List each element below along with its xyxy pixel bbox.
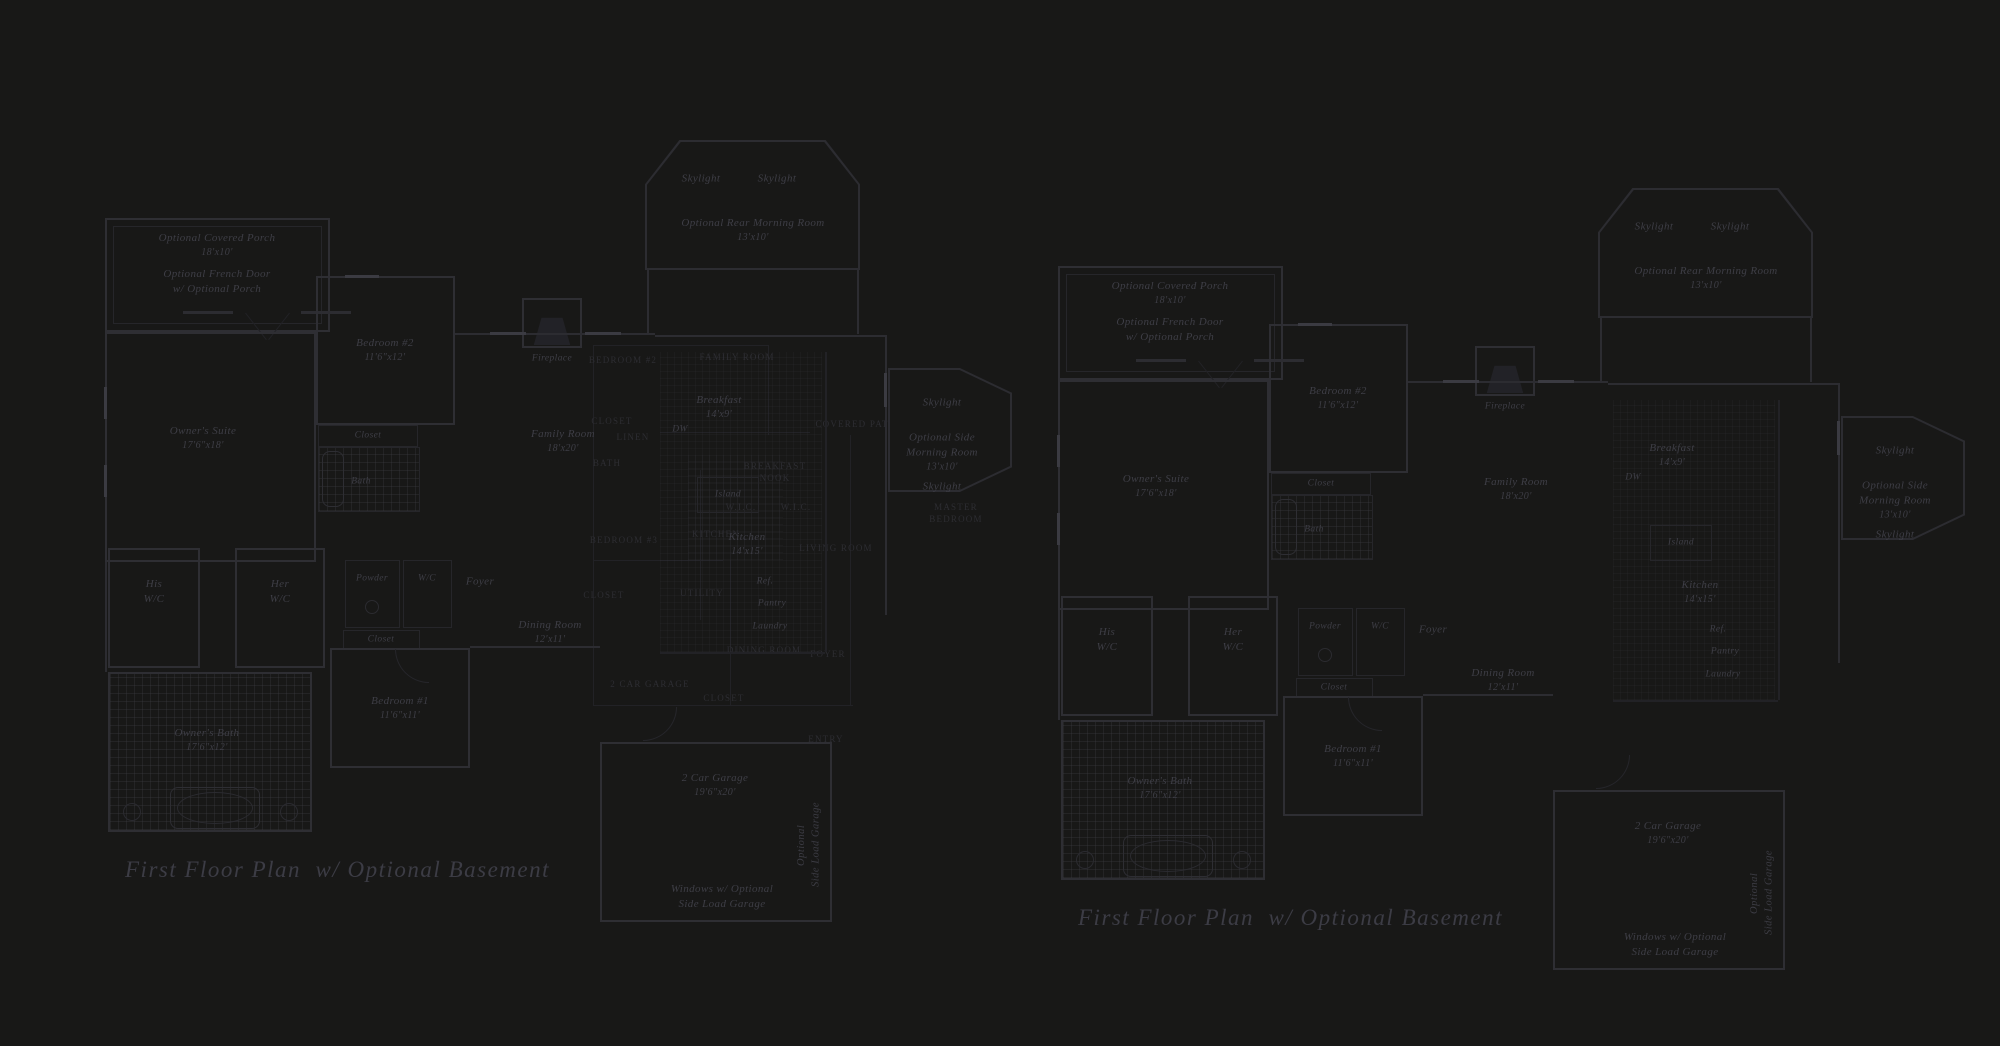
left-outer-wall — [1058, 610, 1060, 720]
window-mark — [104, 465, 107, 497]
plan-title: First Floor Plan w/ Optional Basement — [125, 857, 550, 883]
bath-sink — [1233, 851, 1251, 869]
closet-label: Closet — [355, 430, 382, 443]
fireplace-label: Fireplace — [532, 353, 572, 366]
garden-tub-basin — [177, 792, 253, 824]
covered-porch-label: Optional Covered Porch 18'x10' — [159, 231, 276, 259]
rear-morning-floor — [1600, 190, 1811, 316]
bedroom2-label: Bedroom #2 11'6"x12' — [1309, 384, 1367, 412]
bay-stub-wall — [1600, 318, 1602, 382]
rear-morning-room — [645, 140, 860, 270]
her-wc-room — [1188, 596, 1278, 716]
french-door-leaf — [183, 311, 233, 314]
bedroom2-label: Bedroom #2 11'6"x12' — [356, 336, 414, 364]
pantry-label: Pantry — [1711, 646, 1739, 659]
his-wc-room — [1061, 596, 1153, 716]
her-wc-label: Her W/C — [1223, 625, 1244, 655]
foyer-label: Foyer — [1419, 623, 1447, 638]
closet2-label: Closet — [368, 634, 395, 647]
door-swing-arc — [643, 707, 677, 741]
skylight-label: Skylight — [923, 396, 962, 411]
owners-bath-label: Owner's Bath 17'6"x12' — [175, 726, 240, 754]
bath-sink — [280, 803, 298, 821]
her-wc-room — [235, 548, 325, 668]
window-mark — [1057, 435, 1060, 467]
rear-morning-room — [1598, 188, 1813, 318]
rear-wall — [1608, 383, 1838, 385]
french-door-leaf — [1136, 359, 1186, 362]
window-mark — [585, 332, 621, 335]
bay-stub-wall — [647, 270, 649, 334]
his-wc-label: His W/C — [1097, 625, 1118, 655]
family-room-wall — [455, 333, 655, 335]
kitchen-wall — [825, 352, 827, 652]
bath-label: Bath — [1304, 524, 1324, 537]
family-room-label: Family Room 18'x20' — [1484, 475, 1548, 503]
ref-label: Ref. — [1710, 624, 1727, 637]
bath-sink — [1076, 851, 1094, 869]
window-mark — [1837, 421, 1840, 455]
his-wc-room — [108, 548, 200, 668]
powder-sink — [1318, 648, 1332, 662]
window-mark — [1298, 323, 1332, 326]
breakfast-label: Breakfast 14'x9' — [696, 393, 741, 421]
door-swing-arc — [1596, 755, 1630, 789]
ref-label: Ref. — [757, 576, 774, 589]
island-label: Island — [1668, 537, 1694, 550]
powder-room — [1298, 608, 1353, 676]
skylight-label: Skylight — [1711, 220, 1750, 235]
his-wc-label: His W/C — [144, 577, 165, 607]
wc-label: W/C — [1371, 621, 1389, 634]
powder-label: Powder — [1309, 621, 1341, 634]
french-door-note: Optional French Door w/ Optional Porch — [163, 267, 270, 297]
left-outer-wall — [105, 562, 107, 672]
kitchen-wall — [1613, 700, 1778, 702]
skylight-label: Skylight — [758, 172, 797, 187]
laundry-label: Laundry — [753, 621, 788, 634]
side-load-garage-label: Optional Side Load Garage — [795, 780, 824, 910]
dining-wall — [1423, 694, 1553, 696]
skylight-label: Skylight — [923, 480, 962, 495]
garage-windows-note: Windows w/ Optional Side Load Garage — [1624, 930, 1726, 960]
powder-room — [345, 560, 400, 628]
foyer-label: Foyer — [466, 575, 494, 590]
breakfast-label: Breakfast 14'x9' — [1649, 441, 1694, 469]
bedroom1-label: Bedroom #1 11'6"x11' — [371, 694, 429, 722]
kitchen-wall — [660, 652, 825, 654]
dining-room-label: Dining Room 12'x11' — [1471, 666, 1534, 694]
owners-suite-label: Owner's Suite 17'6"x18' — [170, 424, 237, 452]
fireplace-label: Fireplace — [1485, 401, 1525, 414]
bathtub — [322, 451, 344, 507]
wc-room — [403, 560, 452, 628]
garden-tub-basin — [1130, 840, 1206, 872]
bedroom1-label: Bedroom #1 11'6"x11' — [1324, 742, 1382, 770]
window-mark — [104, 387, 107, 419]
rear-morning-label: Optional Rear Morning Room 13'x10' — [1634, 264, 1777, 292]
owners-suite-label: Owner's Suite 17'6"x18' — [1123, 472, 1190, 500]
dw-label: DW — [672, 424, 688, 437]
pantry-label: Pantry — [758, 598, 786, 611]
garage-label: 2 Car Garage 19'6"x20' — [1635, 819, 1702, 847]
french-door-note: Optional French Door w/ Optional Porch — [1116, 315, 1223, 345]
dining-wall — [470, 646, 600, 648]
floor-plan-right: Optional Covered Porch 18'x10' Optional … — [1048, 183, 1968, 983]
garage-label: 2 Car Garage 19'6"x20' — [682, 771, 749, 799]
window-mark — [490, 332, 526, 335]
dining-room-label: Dining Room 12'x11' — [518, 618, 581, 646]
laundry-label: Laundry — [1706, 669, 1741, 682]
blueprint-canvas: BEDROOM #2 FAMILY ROOM CLOSET LINEN BATH… — [0, 0, 2000, 1046]
closet2-label: Closet — [1321, 682, 1348, 695]
rear-wall — [655, 335, 885, 337]
skylight-label: Skylight — [1876, 528, 1915, 543]
bay-stub-wall — [1810, 318, 1812, 382]
window-mark — [884, 373, 887, 407]
skylight-label: Skylight — [1876, 444, 1915, 459]
family-room-wall — [1408, 381, 1608, 383]
garage-windows-note: Windows w/ Optional Side Load Garage — [671, 882, 773, 912]
powder-sink — [365, 600, 379, 614]
window-mark — [1538, 380, 1574, 383]
plan-title: First Floor Plan w/ Optional Basement — [1078, 905, 1503, 931]
bathtub — [1275, 499, 1297, 555]
rear-morning-floor — [647, 142, 858, 268]
side-morning-label: Optional Side Morning Room 13'x10' — [1859, 478, 1931, 521]
bath-sink — [123, 803, 141, 821]
wc-label: W/C — [418, 573, 436, 586]
wc-room — [1356, 608, 1405, 676]
covered-porch-label: Optional Covered Porch 18'x10' — [1112, 279, 1229, 307]
kitchen-wall — [1778, 400, 1780, 700]
skylight-label: Skylight — [1635, 220, 1674, 235]
her-wc-label: Her W/C — [270, 577, 291, 607]
side-load-garage-label: Optional Side Load Garage — [1748, 828, 1777, 958]
skylight-label: Skylight — [682, 172, 721, 187]
bay-stub-wall — [857, 270, 859, 334]
powder-label: Powder — [356, 573, 388, 586]
bath-label: Bath — [351, 476, 371, 489]
dw-label: DW — [1625, 472, 1641, 485]
window-mark — [1443, 380, 1479, 383]
window-mark — [1057, 513, 1060, 545]
window-mark — [345, 275, 379, 278]
family-room-label: Family Room 18'x20' — [531, 427, 595, 455]
kitchen-label: Kitchen 14'x15' — [728, 530, 765, 558]
floor-plan-left: Optional Covered Porch 18'x10' Optional … — [95, 135, 1015, 935]
island-label: Island — [715, 489, 741, 502]
side-morning-label: Optional Side Morning Room 13'x10' — [906, 430, 978, 473]
rear-morning-label: Optional Rear Morning Room 13'x10' — [681, 216, 824, 244]
kitchen-label: Kitchen 14'x15' — [1681, 578, 1718, 606]
closet-label: Closet — [1308, 478, 1335, 491]
owners-bath-label: Owner's Bath 17'6"x12' — [1128, 774, 1193, 802]
